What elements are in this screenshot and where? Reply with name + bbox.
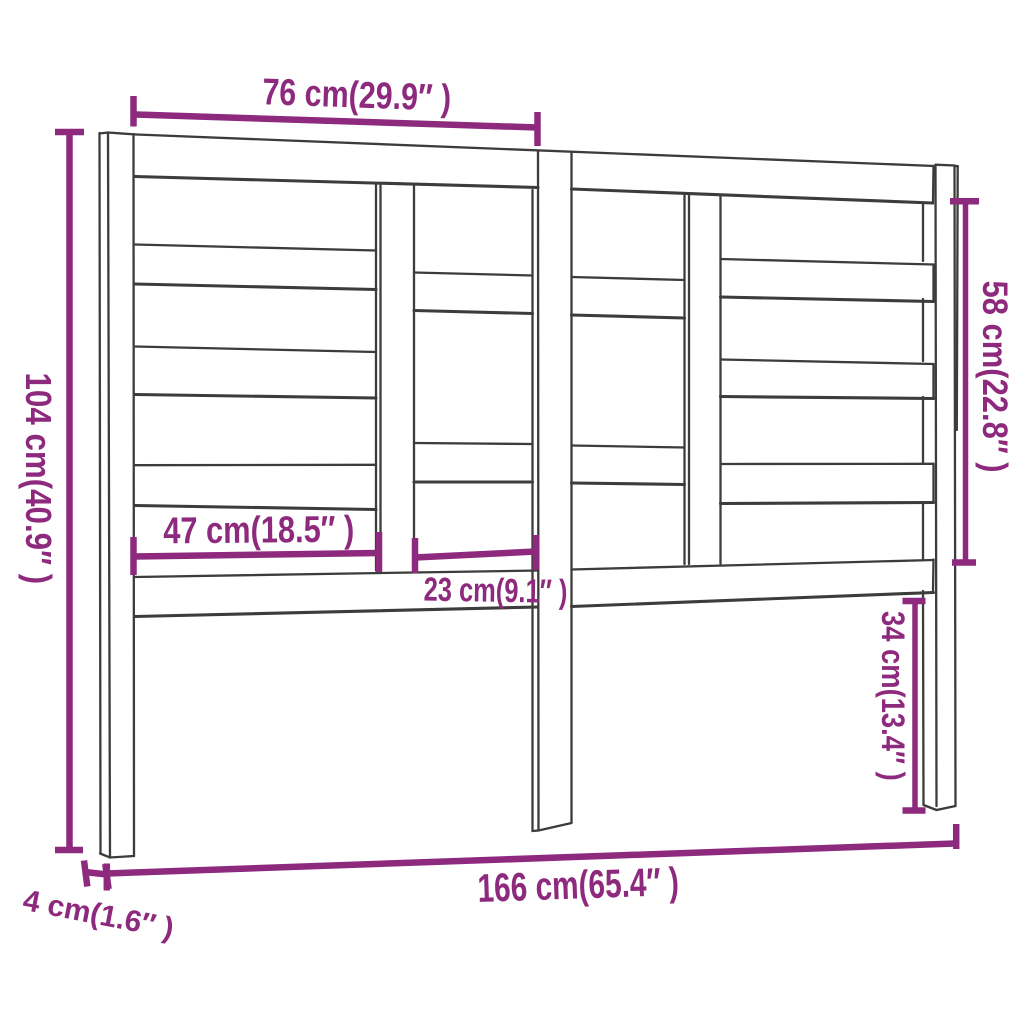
svg-text:23 cm(9.1″ ): 23 cm(9.1″ ) [423, 571, 567, 611]
svg-text:104 cm(40.9″ ): 104 cm(40.9″ ) [17, 373, 58, 585]
svg-text:166 cm(65.4″ ): 166 cm(65.4″ ) [477, 860, 680, 911]
svg-text:34 cm(13.4″ ): 34 cm(13.4″ ) [874, 611, 909, 781]
svg-text:76 cm(29.9″ ): 76 cm(29.9″ ) [262, 71, 452, 119]
svg-text:47 cm(18.5″ ): 47 cm(18.5″ ) [163, 509, 354, 552]
svg-text:58 cm(22.8″ ): 58 cm(22.8″ ) [975, 281, 1014, 473]
